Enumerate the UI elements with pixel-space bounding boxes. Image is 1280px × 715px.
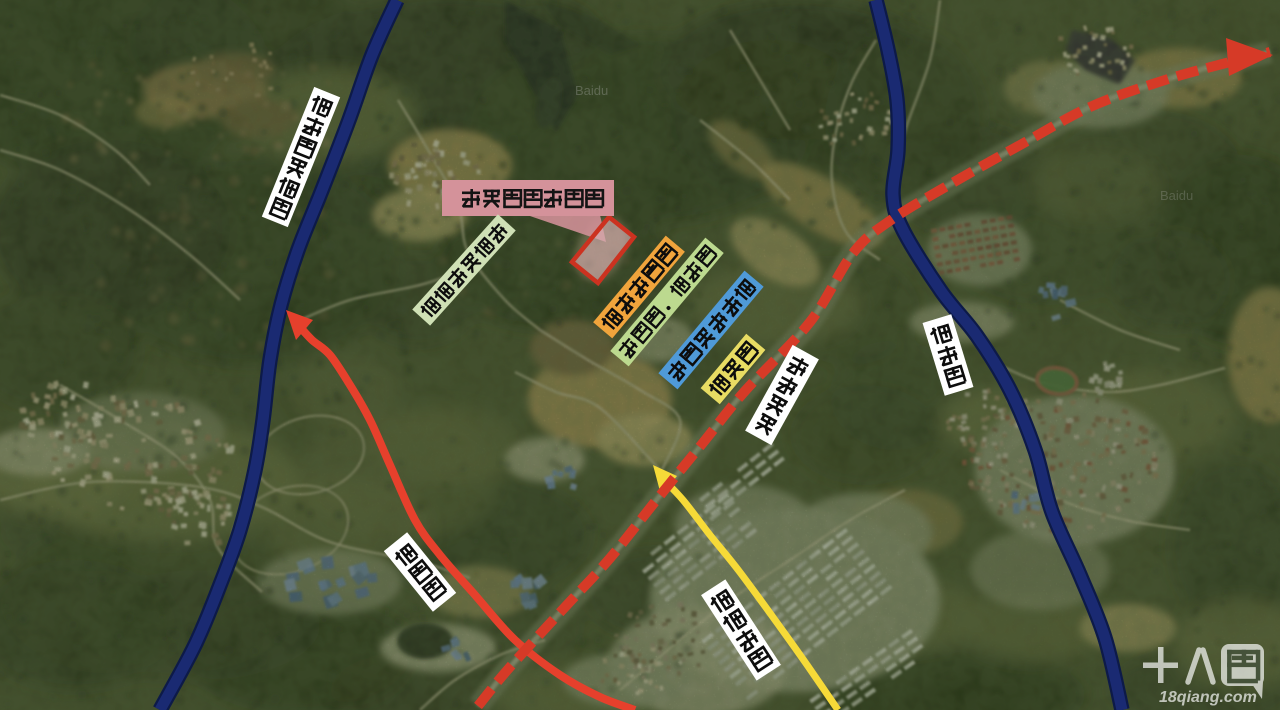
svg-text:18qiang.com: 18qiang.com	[1159, 689, 1257, 706]
